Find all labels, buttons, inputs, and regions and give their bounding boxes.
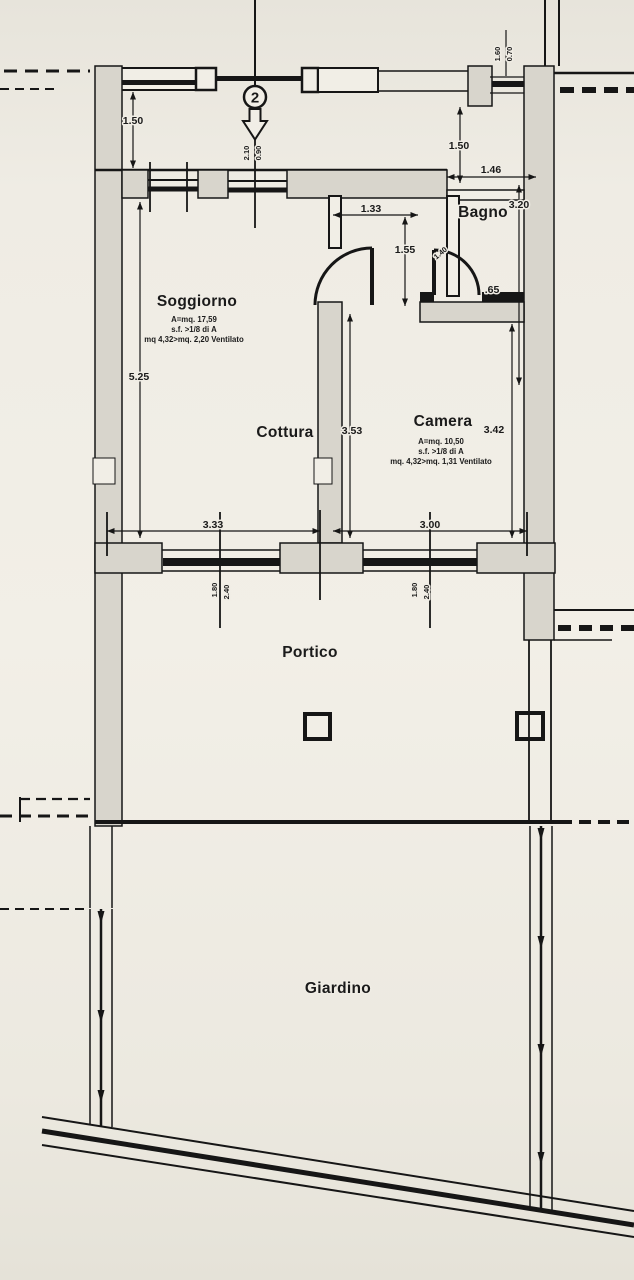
wall-left-pilaster xyxy=(93,458,115,484)
wall-divider-pilaster xyxy=(314,458,332,484)
portico-pillar-right xyxy=(517,713,543,739)
wall-camera-top xyxy=(420,302,524,322)
dim-hall-width: 1.33 xyxy=(361,203,382,215)
door-hall-swing-arc xyxy=(315,248,372,305)
room-label-giardino: Giardino xyxy=(305,980,371,997)
wall-left xyxy=(95,66,122,826)
railing-left xyxy=(112,68,196,90)
camera-area: A=mq. 10,50 xyxy=(418,437,464,446)
dim-entry-door-width: 0.90 xyxy=(254,146,263,161)
french-window-camera xyxy=(363,550,477,571)
railing-right xyxy=(318,68,378,92)
dim-bagno-camera-depth: 3.20 xyxy=(509,199,530,211)
room-label-bagno: Bagno xyxy=(458,204,508,221)
dim-camera-depth: 3.42 xyxy=(484,424,505,436)
neighbor-boundary-left xyxy=(0,797,90,822)
dim-window1-width: 1.80 xyxy=(210,583,219,598)
giardino xyxy=(0,826,634,1237)
dim-window2-width: 1.80 xyxy=(410,583,419,598)
dim-soggiorno-depth: 5.25 xyxy=(129,371,150,383)
dim-bagno-width: 1.46 xyxy=(481,164,502,176)
soggiorno-ratio: s.f. >1/8 di A xyxy=(171,325,217,334)
dim-bath-window-height: 1.60 xyxy=(493,47,502,62)
wall-top xyxy=(287,170,447,198)
room-label-portico: Portico xyxy=(282,644,338,661)
dim-hall-depth: 1.55 xyxy=(395,244,416,256)
dim-walkway-depth: 1.50 xyxy=(123,115,144,127)
floor-plan-page: 1.60 0.70 2 2.10 0.90 xyxy=(0,0,634,1280)
unit-number: 2 xyxy=(251,90,259,107)
dim-bagno-entry-offset: 1.50 xyxy=(449,140,470,152)
camera-ratio: s.f. >1/8 di A xyxy=(418,447,464,456)
dim-cottura-depth: 3.53 xyxy=(342,425,363,437)
bath-window: 1.60 0.70 xyxy=(490,30,529,93)
portico-pillar-center xyxy=(305,714,330,739)
entry-door xyxy=(228,181,287,190)
dim-camera-window-span: 3.00 xyxy=(420,519,441,531)
property-boundary xyxy=(42,1117,634,1237)
entrance-arrow-icon xyxy=(243,109,267,140)
soggiorno-area: A=mq. 17,59 xyxy=(171,315,217,324)
camera-vent: mq. 4,32>mq. 1,31 Ventilato xyxy=(390,457,492,466)
fence-right xyxy=(530,826,552,1212)
room-label-cottura: Cottura xyxy=(256,424,313,441)
fence-left xyxy=(90,909,112,1127)
interior-walls xyxy=(314,190,524,543)
floor-plan-drawing: 1.60 0.70 2 2.10 0.90 xyxy=(0,0,634,1280)
door-hall xyxy=(315,248,372,305)
soggiorno-vent: mq 4,32>mq. 2,20 Ventilato xyxy=(144,335,244,344)
dim-window1-height: 2.40 xyxy=(222,585,231,600)
dim-soggiorno-window-span: 3.33 xyxy=(203,519,224,531)
wall-cottura-camera xyxy=(318,302,342,543)
pier xyxy=(468,66,492,106)
dim-bagno-wall-segment: .65 xyxy=(485,284,500,296)
neighbor-window-right xyxy=(554,610,634,640)
dim-entry-door-height: 2.10 xyxy=(242,146,251,161)
room-label-camera: Camera xyxy=(414,413,473,430)
french-window-soggiorno xyxy=(162,550,280,571)
room-label-soggiorno: Soggiorno xyxy=(157,293,237,310)
dim-bath-window-width: 0.70 xyxy=(505,47,514,62)
wall-hall-left xyxy=(329,196,341,248)
entrance-marker: 2 2.10 0.90 xyxy=(242,86,267,228)
dim-window2-height: 2.40 xyxy=(422,585,431,600)
